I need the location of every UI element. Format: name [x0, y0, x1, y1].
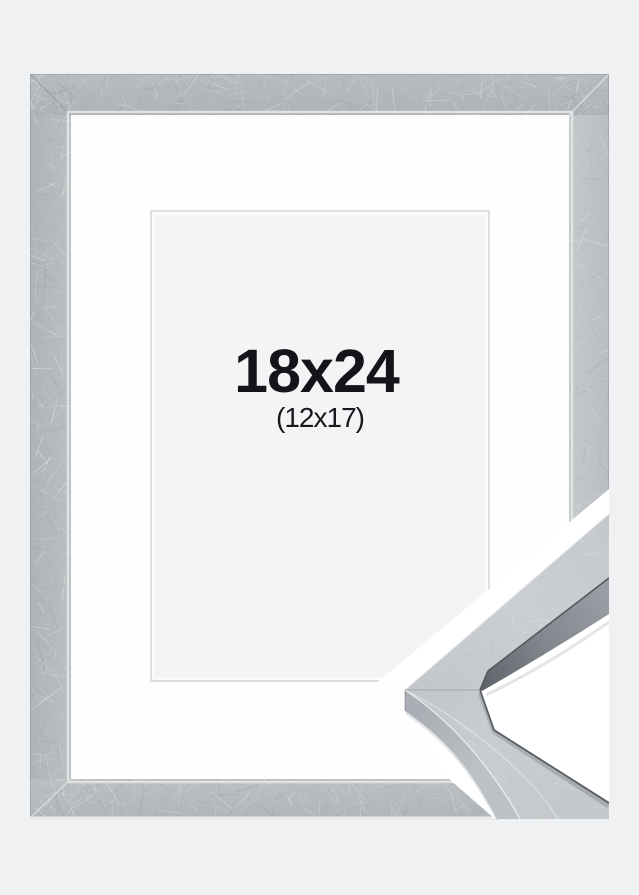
svg-text:(12x17): (12x17): [276, 402, 364, 433]
svg-text:18x24: 18x24: [234, 337, 400, 405]
